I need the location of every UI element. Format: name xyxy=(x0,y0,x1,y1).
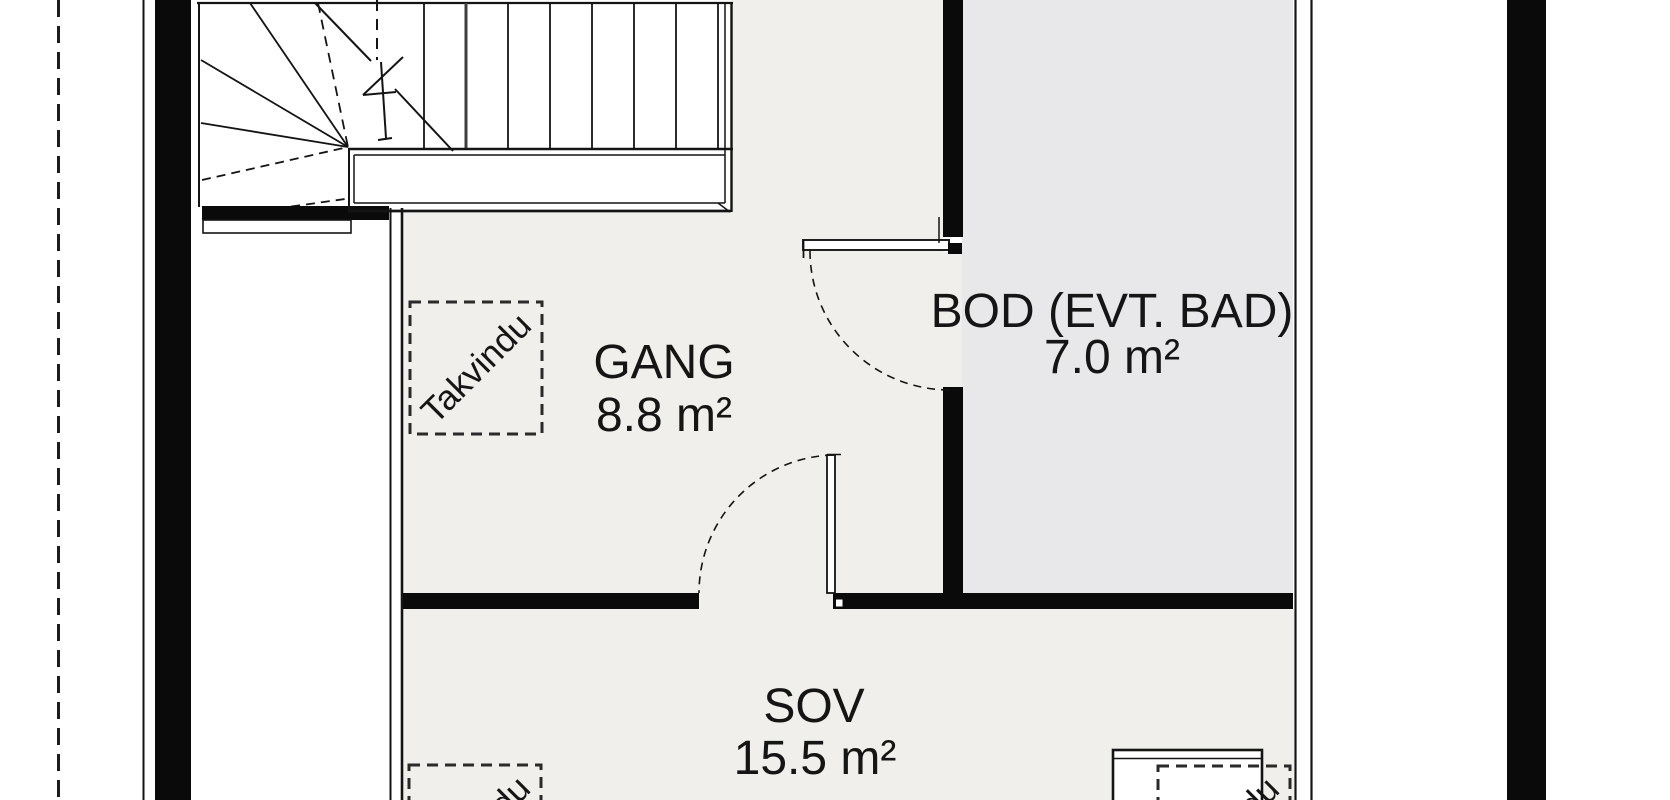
svg-text:8.8 m²: 8.8 m² xyxy=(596,389,732,442)
svg-text:15.5 m²: 15.5 m² xyxy=(734,732,897,785)
svg-text:SOV: SOV xyxy=(763,680,864,733)
svg-text:GANG: GANG xyxy=(593,336,734,389)
svg-text:7.0 m²: 7.0 m² xyxy=(1044,331,1180,384)
